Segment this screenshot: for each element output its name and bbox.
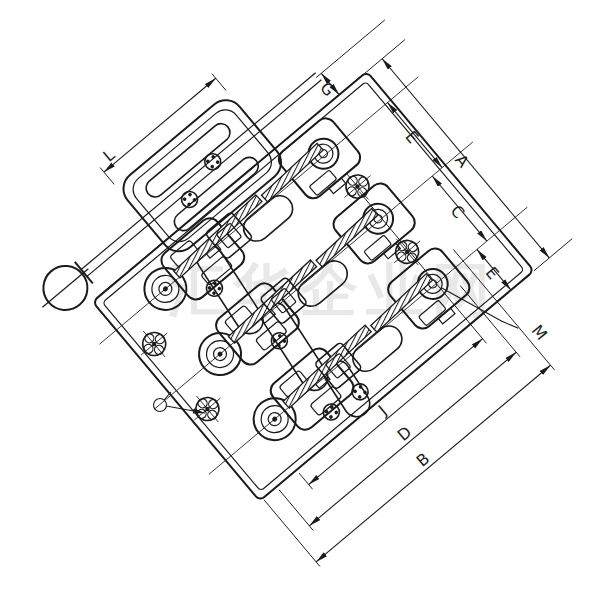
watermark-text: 汇华企业网 xyxy=(167,256,498,324)
technical-drawing-svg: 汇华企业网 xyxy=(0,0,600,600)
drawing-canvas: 汇华企业网 xyxy=(0,0,600,600)
